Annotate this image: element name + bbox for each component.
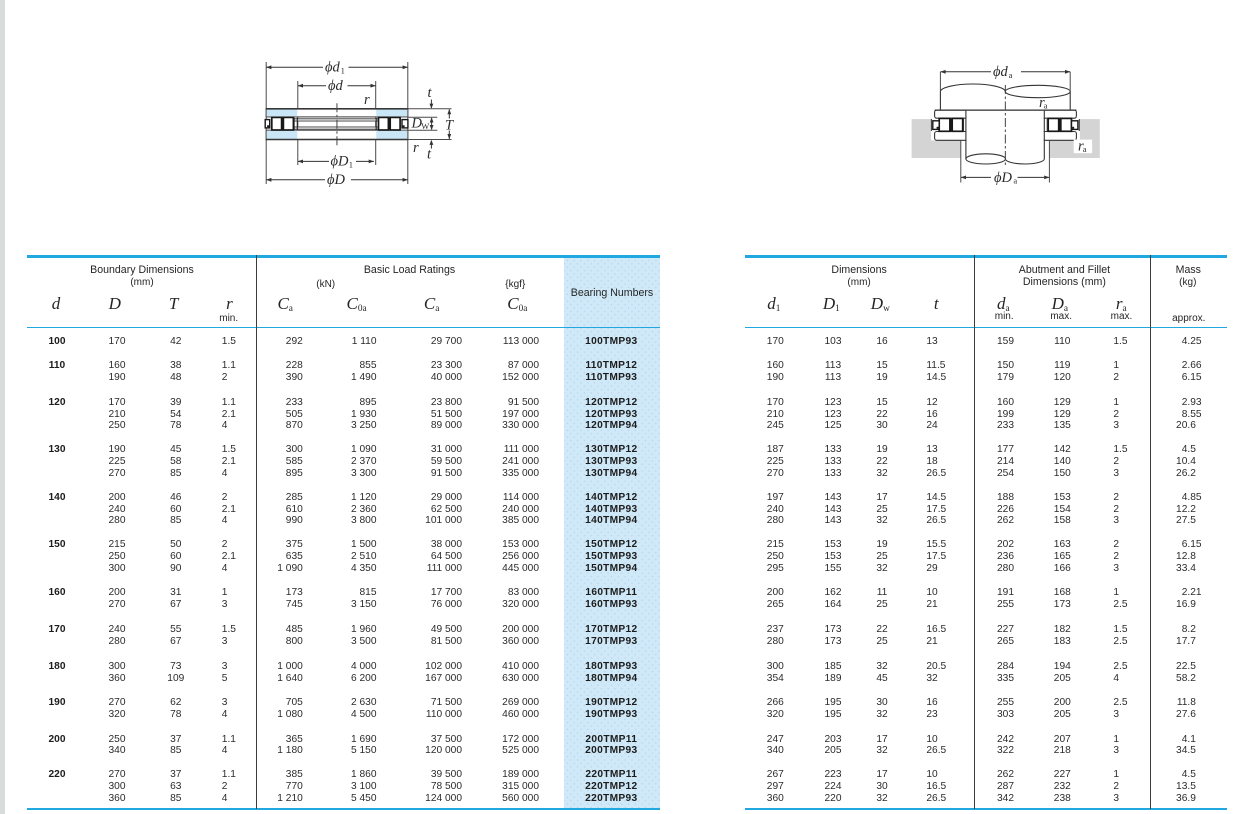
svg-text:a: a — [1009, 70, 1013, 80]
svg-text:ϕD: ϕD — [994, 170, 1013, 186]
svg-text:ϕD: ϕD — [327, 172, 346, 188]
svg-text:r: r — [413, 140, 419, 156]
svg-text:1: 1 — [341, 66, 345, 76]
svg-text:t: t — [428, 85, 433, 101]
svg-text:ϕd: ϕd — [993, 64, 1009, 80]
svg-text:1: 1 — [349, 160, 353, 170]
svg-text:W: W — [421, 121, 429, 131]
svg-text:t: t — [427, 147, 432, 163]
svg-text:ϕD: ϕD — [331, 154, 350, 170]
svg-text:T: T — [445, 118, 454, 134]
svg-text:a: a — [1083, 144, 1087, 154]
svg-text:r: r — [364, 92, 370, 108]
svg-text:a: a — [1044, 101, 1048, 111]
svg-text:ϕd: ϕd — [325, 60, 341, 76]
svg-text:a: a — [1013, 175, 1017, 185]
svg-text:ϕd: ϕd — [328, 78, 344, 94]
